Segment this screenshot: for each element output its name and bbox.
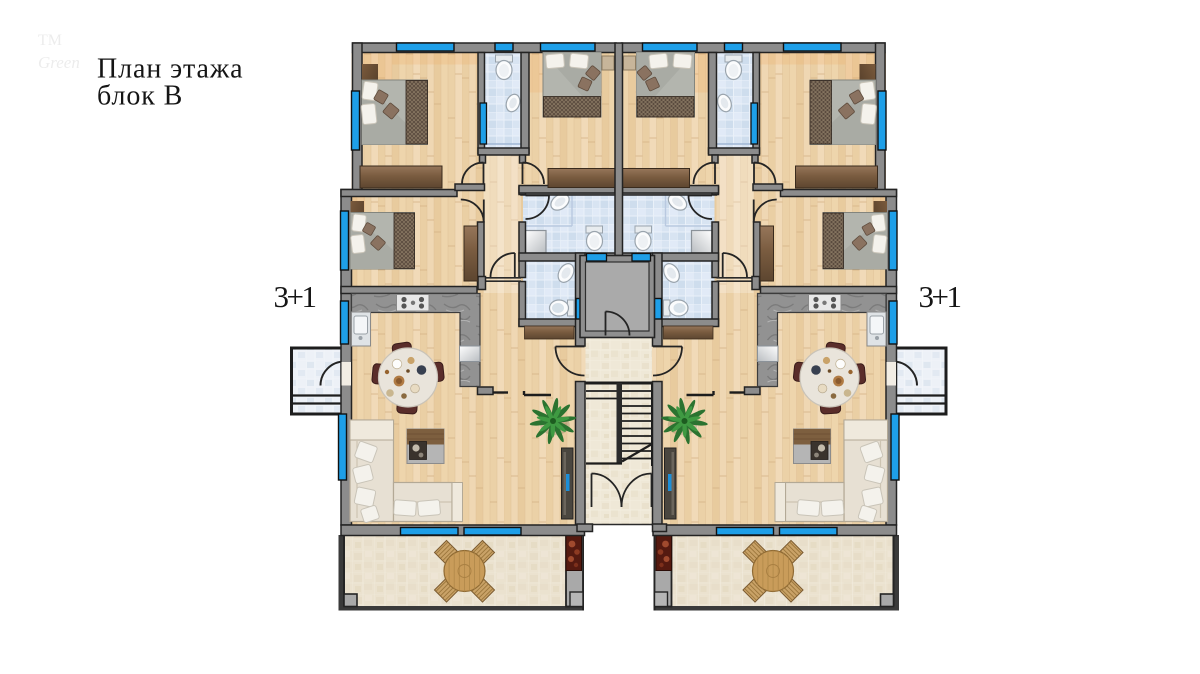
svg-text:блок B: блок B — [97, 81, 183, 112]
svg-text:TM: TM — [38, 32, 62, 49]
svg-text:Green: Green — [38, 53, 80, 72]
svg-text:3+1: 3+1 — [919, 279, 961, 314]
svg-text:3+1: 3+1 — [274, 279, 316, 314]
